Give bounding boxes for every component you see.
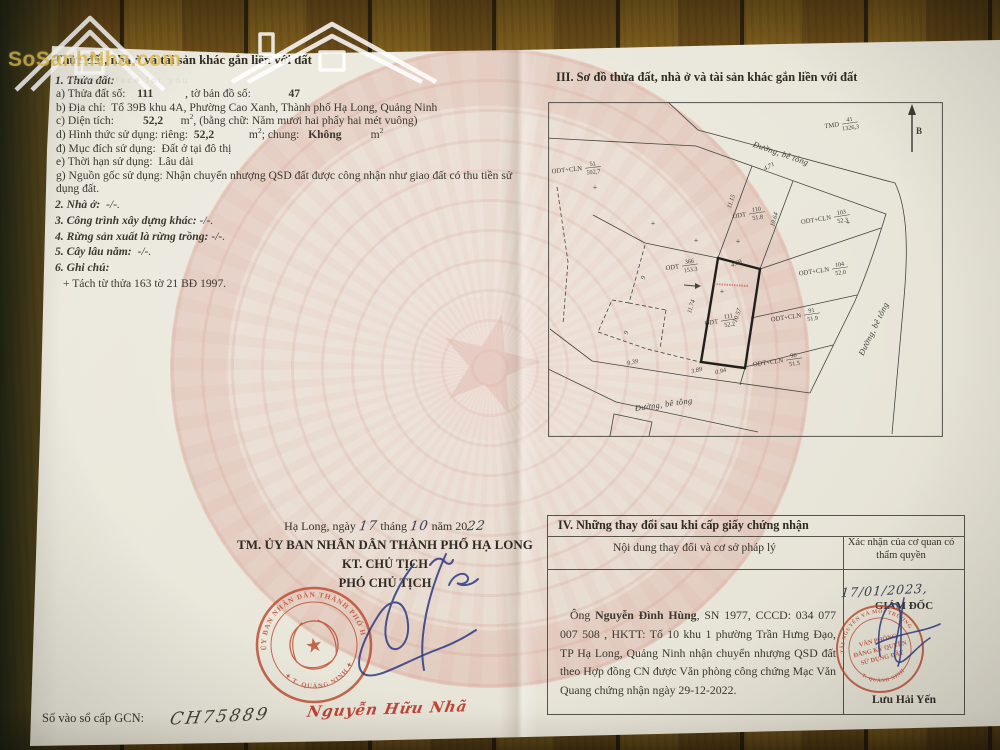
section-4-heading: IV. Những thay đổi sau khi cấp giấy chứn…: [558, 518, 809, 533]
svg-text:592,7: 592,7: [586, 168, 601, 176]
gcn-number-handwritten: CH75889: [168, 704, 271, 729]
plus-mark: +: [720, 287, 725, 296]
column-header-content: Nội dung thay đổi và cơ sở pháp lý: [562, 541, 827, 554]
svg-text:91: 91: [808, 307, 815, 315]
plus-mark: +: [694, 236, 699, 245]
svg-text:ODT: ODT: [704, 318, 718, 327]
dimension-4.71: 4.71: [763, 161, 776, 173]
transfer-entry-text: Ông Nguyễn Đình Hùng, SN 1977, CCCD: 034…: [560, 606, 836, 700]
section2-line: d) Hình thức sử dụng: riêng: 52,2 m2; ch…: [38, 128, 516, 142]
plus-mark: +: [846, 218, 851, 227]
svg-text:ODT+CLN: ODT+CLN: [770, 312, 801, 323]
parcel-label-90: ODT+CLN9051.5: [752, 351, 803, 373]
section2-line: 6. Ghi chú:: [38, 261, 516, 275]
svg-text:52.0: 52.0: [835, 269, 847, 277]
dimension-9.39: 9.39: [626, 358, 639, 368]
svg-text:51: 51: [589, 160, 596, 168]
plus-mark: +: [593, 183, 598, 192]
north-label: B: [916, 126, 922, 136]
svg-text:51.5: 51.5: [789, 360, 801, 368]
plus-mark: +: [736, 237, 741, 246]
plus-mark: +: [651, 219, 656, 228]
dimension-10.57: 10.57: [732, 307, 744, 324]
dimension-4.69: 4.69: [730, 258, 744, 269]
gcn-label: Số vào sổ cấp GCN:: [42, 711, 144, 725]
section-2-lines: 1. Thửa đất:a) Thửa đất số: 111 , tờ bản…: [38, 74, 516, 291]
svg-text:ODT+CLN: ODT+CLN: [752, 357, 783, 368]
small-marker: 9: [640, 274, 648, 280]
issue-date-line: Hạ Long, ngày 17 tháng 10 năm 2022: [235, 519, 535, 534]
svg-text:ODT+CLN: ODT+CLN: [798, 266, 829, 277]
north-arrow-icon: B: [908, 104, 922, 152]
parcel-label-103: ODT+CLN10352.3: [800, 208, 851, 231]
gcn-book-number-row: Số vào sổ cấp GCN:CH75889: [42, 707, 270, 727]
diagram-border: [549, 103, 943, 437]
section2-line: g) Nguồn gốc sử dụng: Nhận chuyển nhượng…: [38, 169, 516, 196]
certificate-paper: II. Thửa đất, nhà ở và tài sản khác gắn …: [0, 0, 1000, 750]
svg-text:51.9: 51.9: [807, 315, 819, 323]
section2-line: 4. Rừng sản xuất là rừng trồng: -/-.: [38, 230, 516, 244]
parcel-label-41: TMD411326,3: [824, 115, 860, 135]
chairman-signature-ink: [318, 542, 488, 692]
section-3-heading: III. Sơ đồ thửa đất, nhà ở và tài sản kh…: [556, 70, 976, 85]
parcel-label-51: ODT+CLN51592,7: [551, 160, 602, 180]
dimension-11.74: 11.74: [686, 298, 697, 314]
svg-text:ODT+CLN: ODT+CLN: [551, 165, 582, 175]
svg-text:153.3: 153.3: [683, 266, 698, 275]
small-markers: 99: [623, 274, 648, 335]
section2-line: + Tách từ thửa 163 tờ 21 BĐ 1997.: [38, 277, 516, 291]
parcel-label-366: ODT366153.3: [665, 257, 699, 277]
column-header-confirmation: Xác nhận của cơ quan có thẩm quyền: [844, 537, 958, 562]
road-labels: Đường, bê tôngĐường, bê tôngĐường, bê tô…: [633, 140, 890, 414]
dimension-3.89: 3.89: [689, 366, 703, 376]
kt-initial-ink: [428, 555, 454, 569]
svg-text:41: 41: [846, 116, 853, 124]
pho-initial-ink: [446, 570, 480, 590]
parcel-label-104: ODT+CLN10452.0: [798, 260, 849, 282]
micro-red-text: [714, 284, 748, 286]
section2-line: 3. Công trình xây dựng khác: -/-.: [38, 214, 516, 228]
parcel-label-91: ODT+CLN9151.9: [770, 306, 821, 328]
road-label: Đường, bê tông: [633, 396, 693, 413]
survey-plus-marks: ++++++: [593, 183, 851, 296]
svg-text:ODT: ODT: [732, 211, 746, 220]
road-label: Đường, bê tông: [751, 140, 810, 168]
small-marker: 9: [623, 329, 631, 335]
section2-line: 2. Nhà ở: -/-.: [38, 198, 516, 212]
svg-text:90: 90: [790, 352, 797, 360]
director-signature-ink: [846, 586, 946, 681]
dimension-11.15: 11.15: [726, 194, 737, 209]
section2-line: 5. Cây lâu năm: -/-.: [38, 245, 516, 259]
site-watermark-brand: SoSanhNha.com: [8, 48, 181, 72]
svg-text:TMD: TMD: [824, 121, 840, 130]
svg-text:ODT+CLN: ODT+CLN: [800, 214, 831, 226]
svg-text:ODT: ODT: [665, 263, 679, 272]
svg-text:51.8: 51.8: [752, 214, 764, 223]
plot-arrow-icon: [684, 283, 701, 289]
section2-line: đ) Mục đích sử dụng: Đất ở tại đô thị: [38, 142, 516, 156]
site-watermark-tagline: Great place for you: [70, 75, 190, 85]
section2-line: e) Thời hạn sử dụng: Lâu dài: [38, 155, 516, 169]
cadastral-diagram: B TMD411326,3ODT+CLN51592,7ODT11051.8ODT…: [548, 102, 943, 437]
svg-text:1326,3: 1326,3: [842, 123, 860, 132]
diagram-roads-and-boundaries: [548, 102, 906, 436]
section2-line: c) Diện tích: 52,2 m2, (bằng chữ: Năm mư…: [38, 114, 516, 128]
road-label: Đường, bê tông: [857, 301, 891, 358]
dimension-0.94: 0.94: [714, 367, 727, 377]
